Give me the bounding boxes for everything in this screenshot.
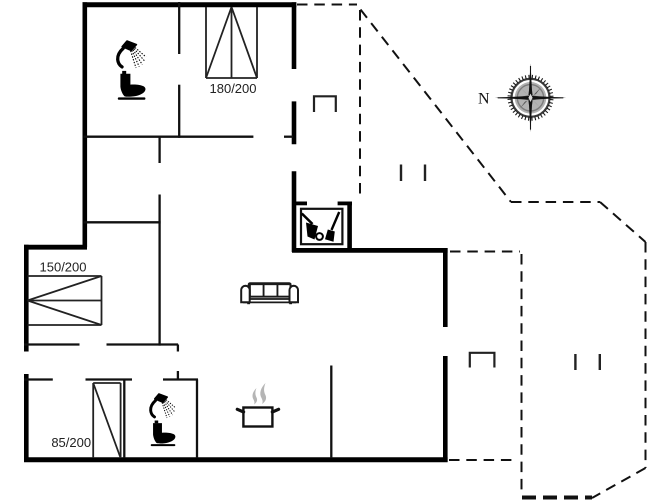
svg-text:85/200: 85/200 bbox=[51, 435, 91, 450]
svg-text:N: N bbox=[478, 91, 490, 108]
svg-text:150/200: 150/200 bbox=[40, 260, 87, 275]
svg-text:180/200: 180/200 bbox=[210, 81, 257, 96]
